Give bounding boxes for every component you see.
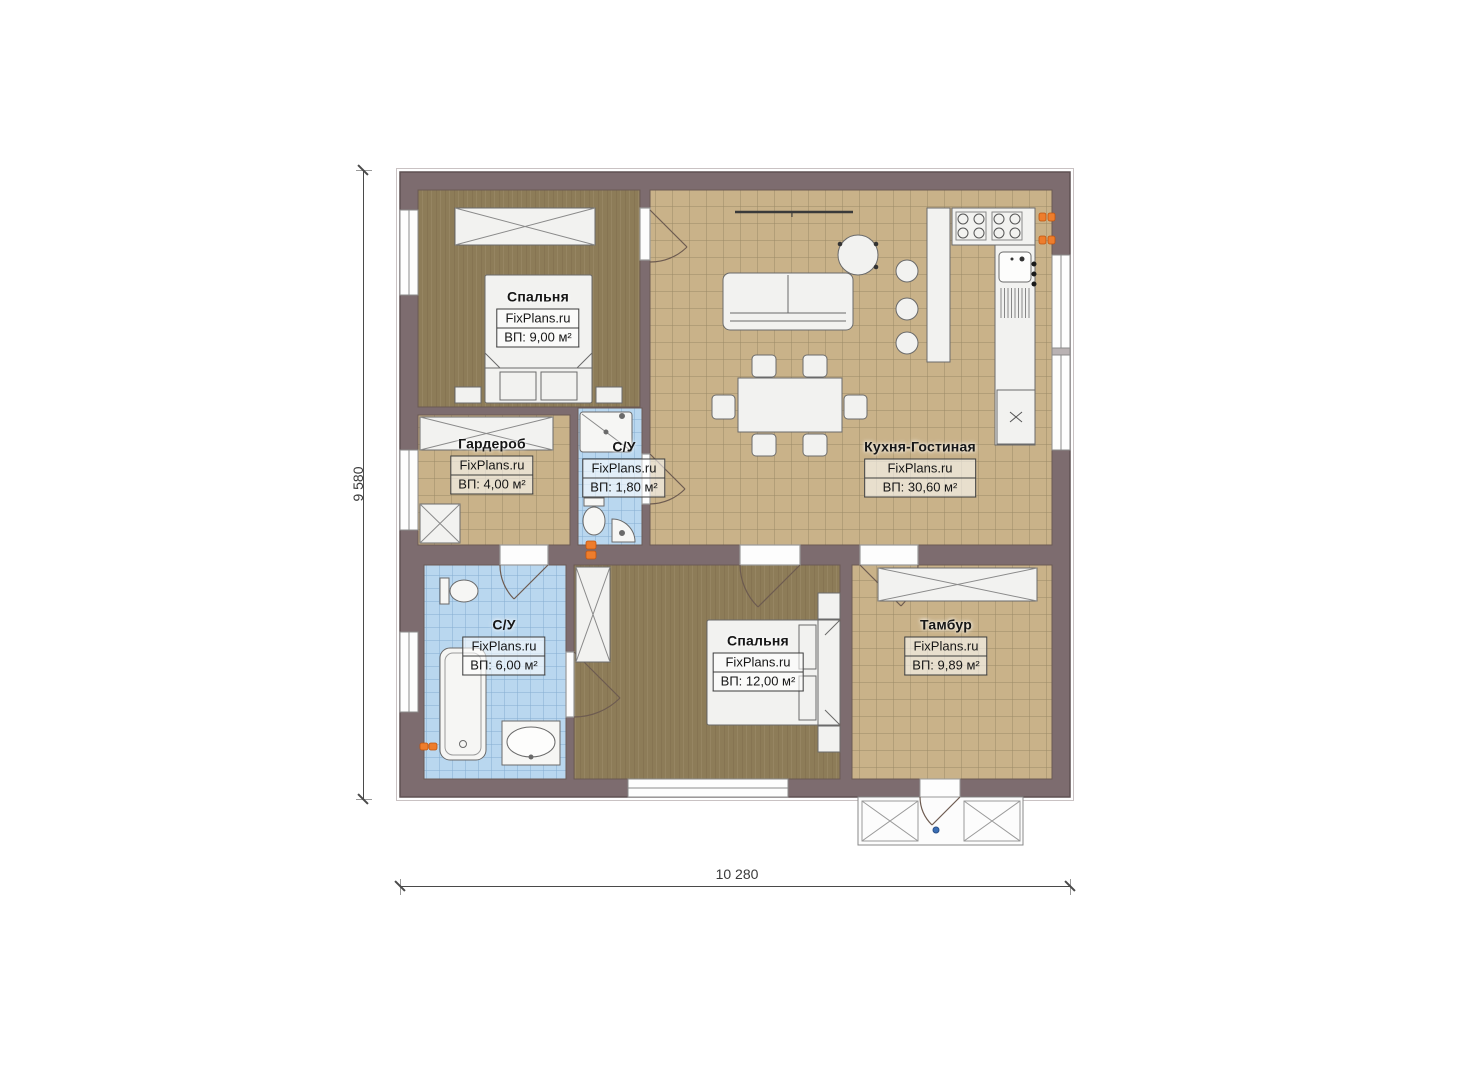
floor-plan: Спальня FixPlans.ru ВП: 9,00 м² Гардероб… (400, 172, 1070, 797)
room-label-wardrobe: Гардероб FixPlans.ru ВП: 4,00 м² (450, 436, 533, 495)
window-right-kitchen (1052, 255, 1070, 450)
toilet (440, 578, 478, 604)
outlet-marker (429, 743, 437, 750)
room-area: ВП: 30,60 м² (864, 478, 976, 497)
window-left-wardrobe (400, 450, 418, 530)
window-left-bathroom (400, 632, 418, 712)
wardrobe-cabinet (878, 568, 1037, 601)
nightstand (818, 726, 840, 752)
dining-chair (844, 395, 867, 419)
dining-chair (803, 434, 827, 456)
room-label-bedroom-top: Спальня FixPlans.ru ВП: 9,00 м² (496, 289, 579, 348)
watermark: FixPlans.ru (713, 652, 804, 672)
outlet-marker (586, 551, 596, 559)
room-name: С/У (582, 439, 665, 457)
watermark: FixPlans.ru (582, 458, 665, 478)
tall-cabinet (576, 567, 610, 662)
watermark: FixPlans.ru (450, 455, 533, 475)
room-label-wc-big: С/У FixPlans.ru ВП: 6,00 м² (462, 617, 545, 676)
horizontal-dimension-label: 10 280 (695, 866, 779, 882)
outlet-marker (586, 541, 596, 549)
toilet (583, 498, 605, 535)
outlet-marker (420, 743, 428, 750)
counter-knobs (1032, 262, 1037, 287)
room-name: Кухня-Гостиная (864, 439, 976, 457)
kitchen-sink (999, 252, 1031, 282)
coffee-table-round (838, 235, 879, 275)
room-area: ВП: 9,00 м² (496, 328, 579, 347)
watermark: FixPlans.ru (904, 636, 987, 656)
watermark: FixPlans.ru (462, 636, 545, 656)
outlet-marker (1039, 236, 1046, 244)
window-bottom-bedroom (628, 779, 788, 797)
kitchen-counter-top (952, 208, 1035, 245)
nightstand (455, 387, 481, 403)
furniture-vestibule (878, 568, 1037, 601)
room-label-vestibule: Тамбур FixPlans.ru ВП: 9,89 м² (904, 617, 987, 676)
wardrobe-cabinet (455, 208, 595, 245)
room-name: Гардероб (450, 436, 533, 454)
outlet-marker (1048, 236, 1055, 244)
horizontal-dimension-line (400, 886, 1070, 887)
bar-stool (896, 298, 918, 320)
room-area: ВП: 1,80 м² (582, 478, 665, 497)
room-label-wc-small: С/У FixPlans.ru ВП: 1,80 м² (582, 439, 665, 498)
watermark: FixPlans.ru (864, 458, 976, 478)
vertical-dimension-label: 9 580 (350, 454, 366, 514)
sofa (723, 273, 853, 330)
room-area: ВП: 12,00 м² (713, 672, 804, 691)
nightstand (818, 593, 840, 619)
washbasin (502, 721, 560, 765)
bar-stool (896, 260, 918, 282)
room-label-kitchen-living: Кухня-Гостиная FixPlans.ru ВП: 30,60 м² (864, 439, 976, 498)
room-area: ВП: 9,89 м² (904, 656, 987, 675)
dishwasher (997, 390, 1035, 444)
dining-chair (712, 395, 735, 419)
dining-chair (803, 355, 827, 377)
outlet-marker (1048, 213, 1055, 221)
room-name: Спальня (713, 633, 804, 651)
wardrobe-cabinet (420, 504, 460, 543)
room-name: Тамбур (904, 617, 987, 635)
window-left-bedroom (400, 210, 418, 295)
room-label-bedroom-bottom: Спальня FixPlans.ru ВП: 12,00 м² (713, 633, 804, 692)
dining-chair (752, 434, 776, 456)
dining-table (738, 378, 842, 432)
room-name: Спальня (496, 289, 579, 307)
front-door-opening (920, 779, 960, 797)
room-area: ВП: 4,00 м² (450, 475, 533, 494)
room-area: ВП: 6,00 м² (462, 656, 545, 675)
floor-plan-page: { "plan_title": "FixPlans.ru single-stor… (0, 0, 1474, 1080)
front-door-marker (933, 827, 939, 833)
dining-chair (752, 355, 776, 377)
bar-stool (896, 332, 918, 354)
bar-island (927, 208, 950, 362)
outlet-marker (1039, 213, 1046, 221)
nightstand (596, 387, 622, 403)
room-name: С/У (462, 617, 545, 635)
watermark: FixPlans.ru (496, 308, 579, 328)
